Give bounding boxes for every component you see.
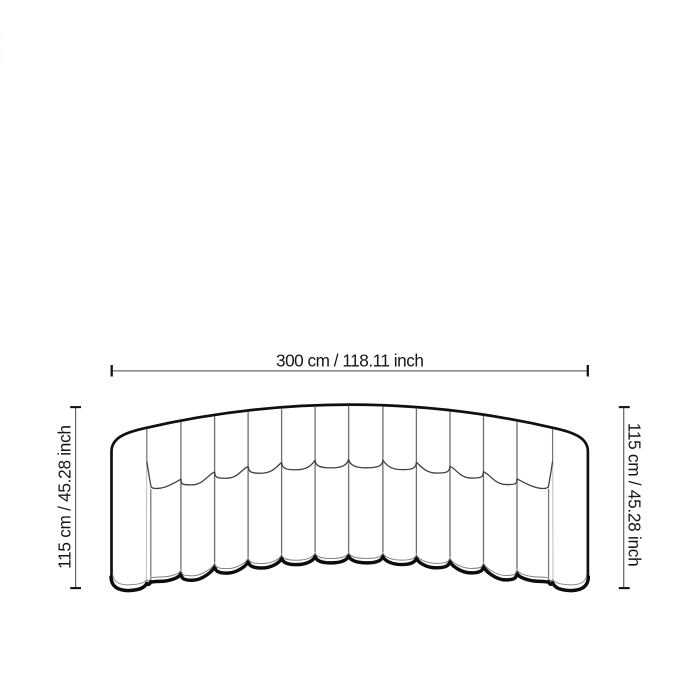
svg-text:115 cm / 45.28 inch: 115 cm / 45.28 inch xyxy=(625,423,645,567)
svg-text:115 cm / 45.28 inch: 115 cm / 45.28 inch xyxy=(54,425,74,569)
svg-text:300 cm / 118.11 inch: 300 cm / 118.11 inch xyxy=(276,350,423,370)
